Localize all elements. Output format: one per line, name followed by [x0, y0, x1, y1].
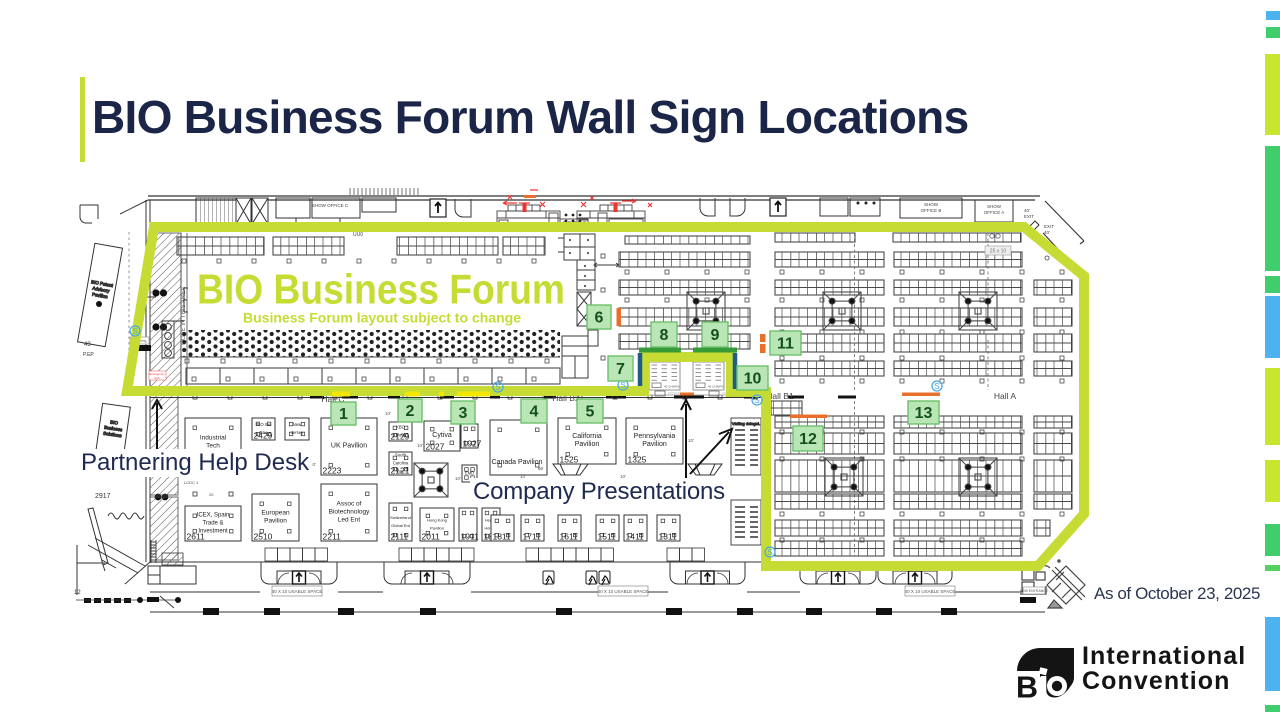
- svg-text:Pavilion: Pavilion: [430, 526, 444, 531]
- svg-text:2011: 2011: [422, 532, 441, 542]
- svg-text:1911: 1911: [461, 532, 480, 542]
- svg-text:KBO: KBO: [396, 425, 406, 430]
- svg-text:2: 2: [406, 403, 415, 420]
- svg-text:43: 43: [84, 342, 91, 348]
- svg-text:2917: 2917: [95, 493, 111, 500]
- svg-text:B: B: [1016, 671, 1038, 705]
- svg-text:1411: 1411: [626, 532, 645, 542]
- svg-text:Pavilion: Pavilion: [264, 518, 287, 525]
- svg-text:10': 10': [455, 476, 461, 481]
- svg-text:Assoc of: Assoc of: [337, 501, 362, 508]
- svg-text:1: 1: [339, 406, 348, 423]
- svg-text:UU0: UU0: [353, 232, 363, 238]
- svg-text:25 x 10: 25 x 10: [990, 249, 1007, 255]
- svg-text:2429: 2429: [254, 431, 273, 441]
- svg-text:5: 5: [586, 404, 595, 421]
- svg-text:2611: 2611: [187, 532, 206, 542]
- svg-text:South: South: [395, 453, 407, 458]
- svg-text:New: New: [293, 422, 302, 427]
- svg-text:2121: 2121: [391, 466, 410, 476]
- svg-text:40 X 10 USABLE SPACE: 40 X 10 USABLE SPACE: [905, 589, 956, 594]
- svg-text:S: S: [934, 382, 939, 391]
- svg-text:1811: 1811: [493, 532, 512, 542]
- svg-text:7: 7: [616, 361, 625, 378]
- svg-text:60: 60: [538, 466, 544, 471]
- svg-text:ICEX, Spain: ICEX, Spain: [197, 513, 230, 519]
- svg-text:Visiting delegat.: Visiting delegat.: [732, 421, 760, 426]
- svg-text:Trade &: Trade &: [202, 521, 223, 527]
- svg-text:3: 3: [459, 405, 468, 422]
- svg-text:LCDC 1: LCDC 1: [184, 480, 199, 485]
- svg-text:40 X 10 USABLE SPACE: 40 X 10 USABLE SPACE: [598, 589, 649, 594]
- svg-text:10': 10': [417, 443, 423, 448]
- svg-text:S: S: [132, 327, 137, 336]
- svg-text:California: California: [572, 433, 602, 440]
- svg-text:2510: 2510: [254, 532, 273, 542]
- svg-text:Led Ent: Led Ent: [338, 517, 361, 524]
- svg-text:10': 10': [385, 411, 391, 416]
- svg-text:Global Ent: Global Ent: [391, 523, 411, 528]
- svg-text:Business Forum layout subject: Business Forum layout subject to change: [243, 311, 521, 326]
- svg-text:4: 4: [530, 404, 539, 421]
- svg-text:EXIT: EXIT: [1044, 224, 1054, 229]
- svg-text:Jersey: Jersey: [291, 430, 304, 435]
- svg-text:EXIT: EXIT: [1024, 214, 1034, 219]
- svg-text:S: S: [620, 381, 625, 390]
- svg-text:OFFICE B: OFFICE B: [921, 208, 942, 213]
- svg-text:6: 6: [595, 310, 604, 327]
- svg-text:40': 40': [1024, 208, 1030, 213]
- svg-text:Biotechnology: Biotechnology: [329, 509, 371, 516]
- svg-text:SHOW OFFICE C: SHOW OFFICE C: [312, 203, 349, 208]
- svg-text:2211: 2211: [323, 532, 342, 542]
- svg-text:BIO Business Forum: BIO Business Forum: [197, 266, 565, 313]
- svg-text:Hong Kong: Hong Kong: [427, 518, 447, 523]
- svg-text:2129: 2129: [391, 432, 410, 442]
- svg-text:Pennsylvania: Pennsylvania: [634, 433, 676, 440]
- svg-text:S: S: [754, 396, 759, 405]
- svg-text:13: 13: [915, 405, 933, 422]
- svg-text:12: 12: [74, 590, 81, 596]
- svg-text:10': 10': [688, 438, 694, 443]
- svg-text:2223: 2223: [323, 466, 342, 476]
- svg-text:SHOW: SHOW: [924, 202, 939, 207]
- svg-text:2111: 2111: [391, 532, 409, 542]
- svg-text:P.EP: P.EP: [83, 352, 94, 358]
- svg-text:1325: 1325: [628, 455, 647, 465]
- svg-text:1525: 1525: [560, 455, 579, 465]
- svg-text:Cytiva: Cytiva: [432, 432, 452, 439]
- svg-text:NEW ENTRANCE: NEW ENTRANCE: [1020, 589, 1049, 593]
- svg-text:UK Pavilion: UK Pavilion: [331, 443, 367, 450]
- svg-text:2027: 2027: [426, 442, 445, 452]
- svg-text:Pavilion: Pavilion: [642, 441, 667, 448]
- svg-text:1927: 1927: [463, 439, 482, 449]
- svg-text:Switzerland: Switzerland: [390, 515, 411, 520]
- svg-text:Canada Pavilion: Canada Pavilion: [492, 459, 543, 466]
- svg-text:Industrial: Industrial: [200, 435, 227, 442]
- svg-text:European: European: [261, 510, 290, 517]
- svg-text:BIO Sw: BIO Sw: [256, 422, 271, 427]
- svg-text:SHOW: SHOW: [987, 204, 1002, 209]
- svg-text:1511: 1511: [598, 532, 617, 542]
- svg-text:1611: 1611: [560, 532, 579, 542]
- svg-text:S: S: [495, 383, 500, 392]
- svg-text:9: 9: [711, 327, 720, 344]
- svg-text:OFFICE A: OFFICE A: [984, 210, 1005, 215]
- svg-text:12: 12: [799, 431, 817, 448]
- svg-text:1711: 1711: [523, 532, 542, 542]
- svg-text:20: 20: [209, 492, 214, 497]
- svg-text:40 X 10 USABLE SPACE: 40 X 10 USABLE SPACE: [272, 589, 323, 594]
- svg-text:40 CHAIRS: 40 CHAIRS: [708, 385, 724, 389]
- svg-text:8: 8: [660, 327, 669, 344]
- svg-text:11: 11: [777, 336, 794, 353]
- svg-text:40 CHAIRS: 40 CHAIRS: [664, 385, 680, 389]
- svg-text:10: 10: [744, 371, 762, 388]
- svg-text:Hall A: Hall A: [994, 391, 1017, 401]
- svg-text:S: S: [767, 548, 772, 557]
- svg-text:40': 40': [1044, 230, 1050, 235]
- svg-text:1311: 1311: [659, 532, 678, 542]
- svg-text:Exit: Exit: [154, 376, 159, 380]
- svg-text:EMD: EMD: [465, 471, 474, 476]
- svg-text:Pavilion: Pavilion: [575, 441, 600, 448]
